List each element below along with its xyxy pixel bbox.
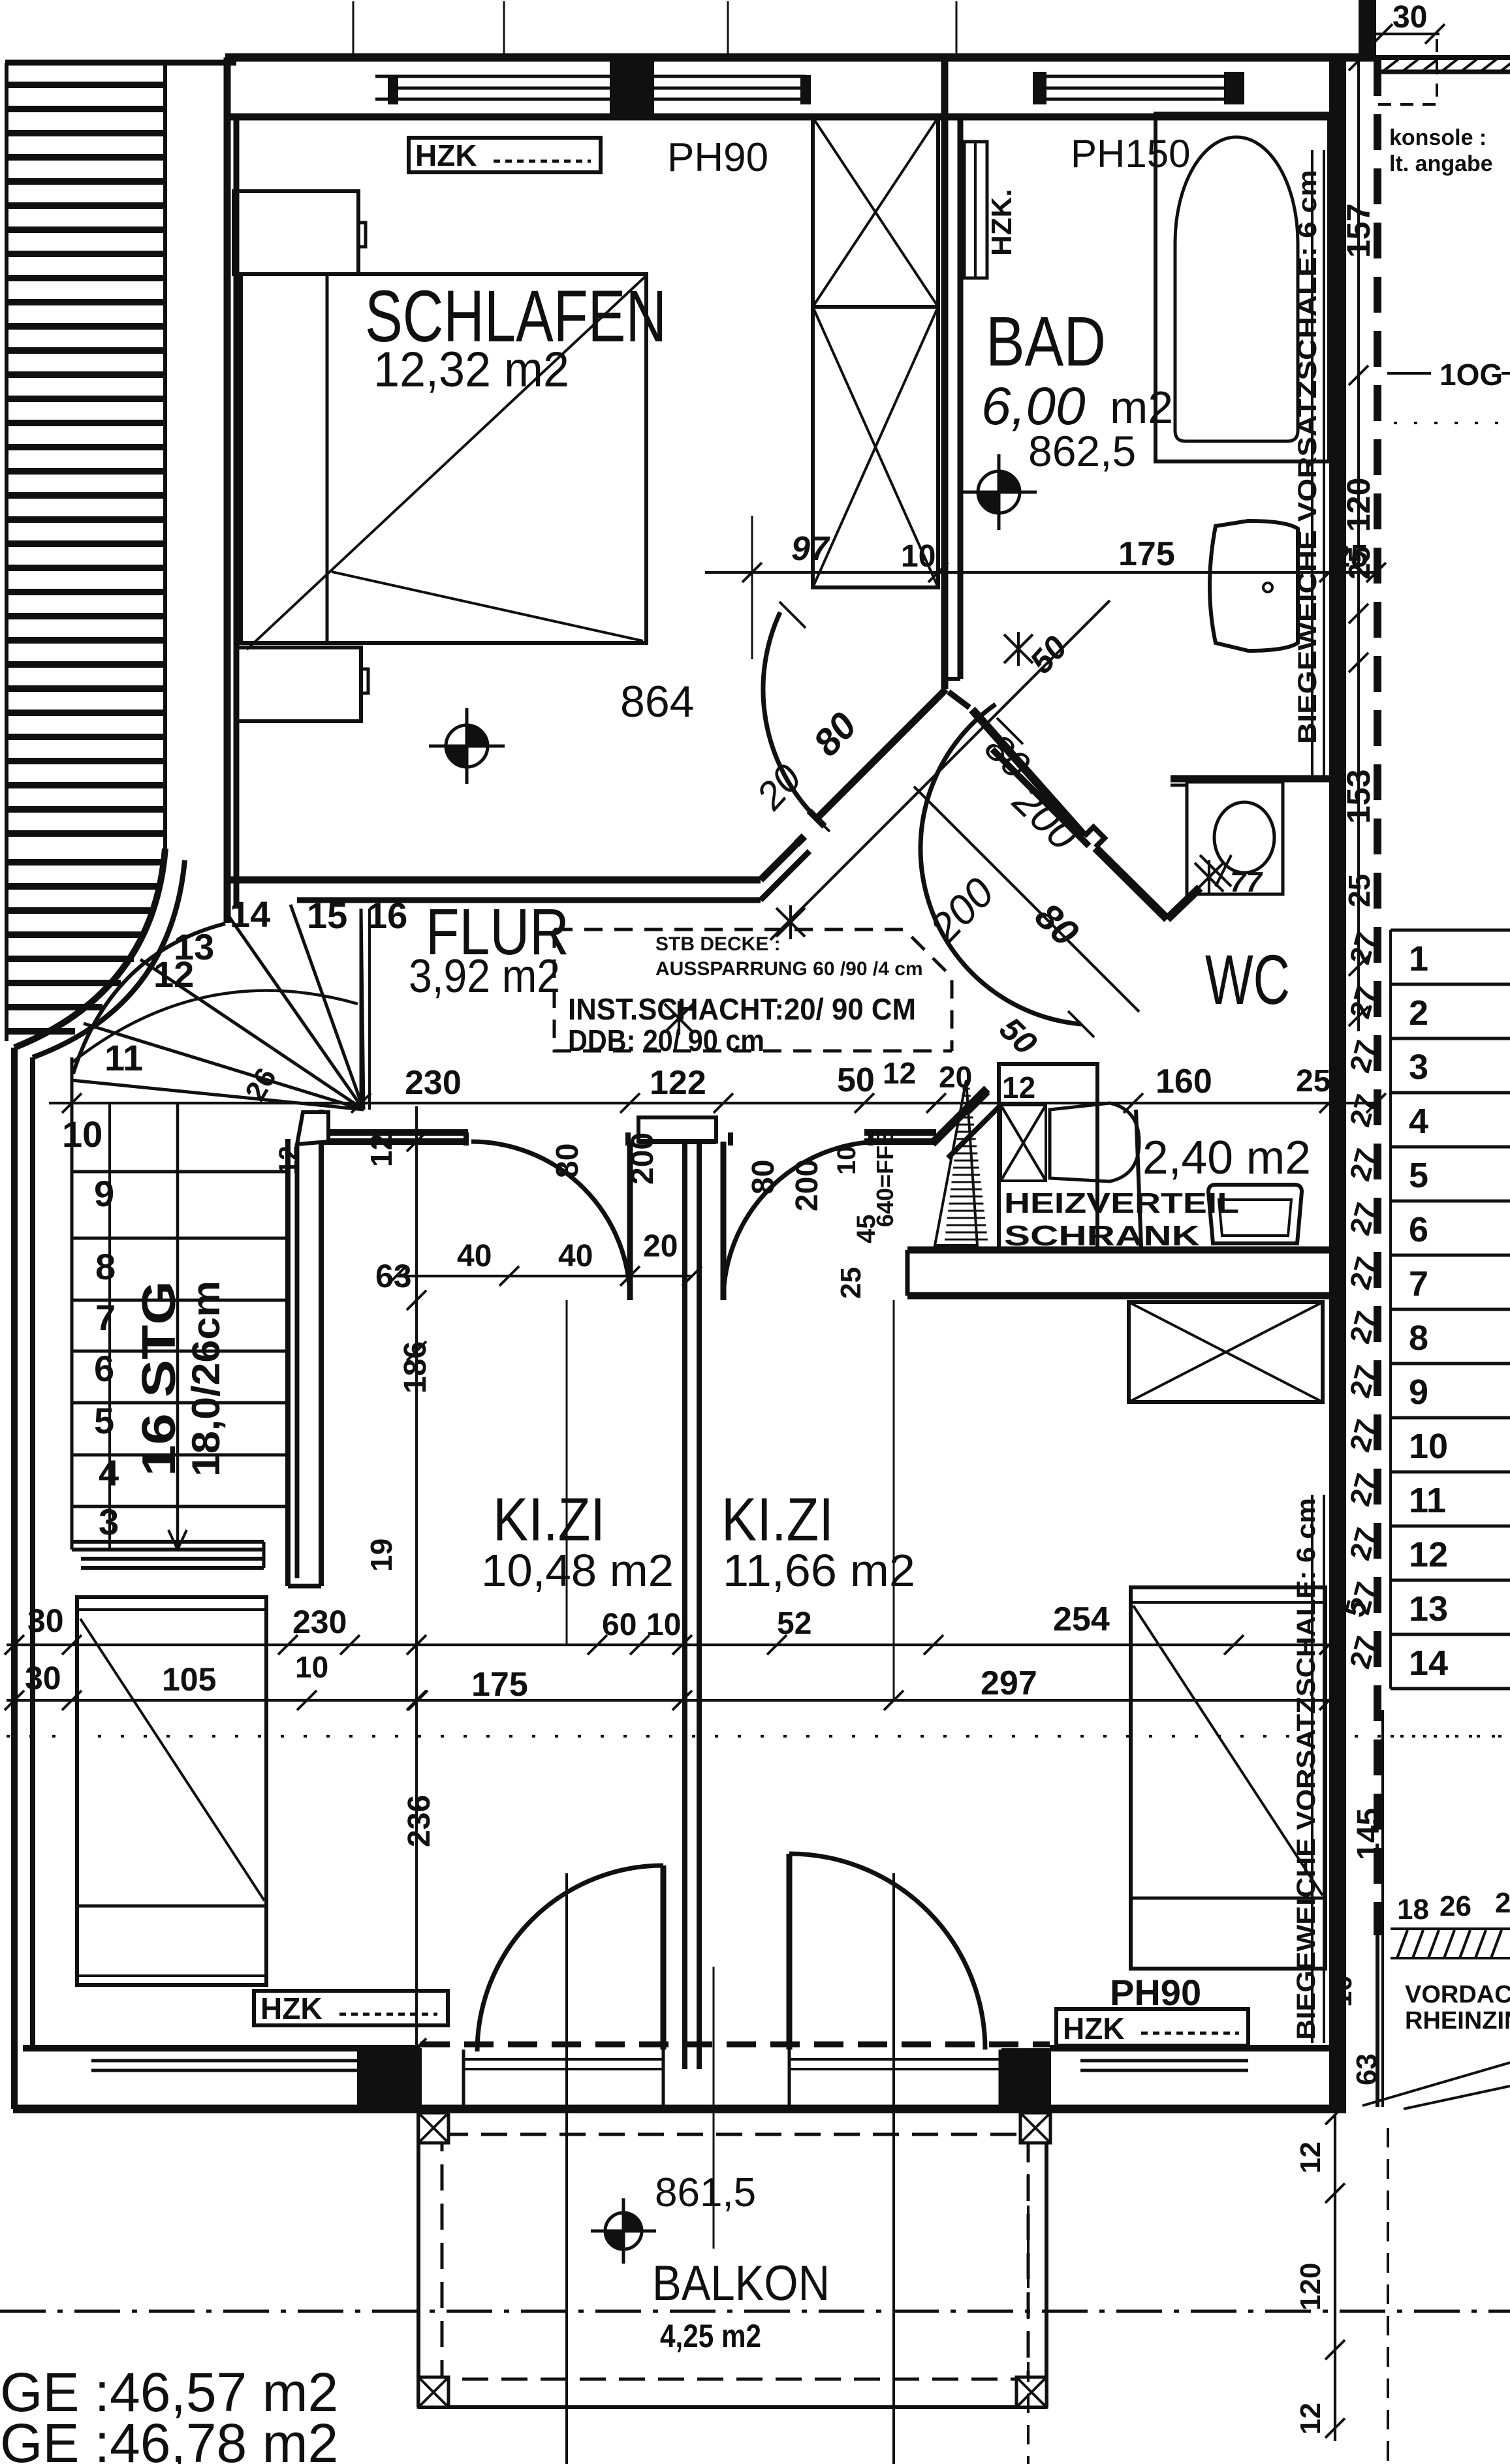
svg-text:BIEGEWEICHE VORSATZSCHALE: 6 c: BIEGEWEICHE VORSATZSCHALE: 6 cm [1292,1498,1321,2040]
svg-text:KI.ZI: KI.ZI [721,1485,834,1553]
svg-text:80: 80 [550,1144,585,1178]
svg-text:50: 50 [837,1061,875,1099]
svg-text:KI.ZI: KI.ZI [493,1485,605,1553]
svg-text:122: 122 [650,1064,706,1102]
svg-text:18: 18 [1397,1894,1429,1926]
svg-text:7: 7 [95,1297,116,1338]
svg-text:640=FFB: 640=FFB [872,1129,898,1227]
svg-text:861,5: 861,5 [655,2170,756,2215]
svg-text:7: 7 [1409,1264,1428,1303]
svg-text:862,5: 862,5 [1028,427,1136,475]
svg-text:8: 8 [1409,1318,1428,1358]
svg-text:97: 97 [791,530,830,568]
svg-text:297: 297 [981,1664,1037,1702]
svg-text:BIEGEWEICHE VORSATZSCHALE: 6 c: BIEGEWEICHE VORSATZSCHALE: 6 cm [1293,170,1322,744]
svg-text:40: 40 [558,1239,593,1273]
svg-text:12: 12 [1295,2142,1327,2174]
svg-text:6: 6 [94,1348,114,1389]
svg-text:2: 2 [1409,993,1428,1033]
svg-text:2,40 m2: 2,40 m2 [1142,1132,1311,1184]
svg-text:5: 5 [1409,1156,1428,1195]
svg-text:25: 25 [1342,546,1376,580]
svg-text:12: 12 [274,1146,303,1176]
svg-text:12: 12 [883,1056,916,1090]
svg-text:VORDACH: VORDACH [1405,1981,1510,2008]
svg-text:10: 10 [62,1114,102,1155]
svg-text:lt. angabe: lt. angabe [1389,151,1493,176]
svg-text:236: 236 [402,1795,437,1847]
svg-text:120: 120 [1295,2263,1327,2311]
svg-text:15: 15 [307,895,347,936]
svg-text:AUSSPARRUNG 60 /90 /4 cm: AUSSPARRUNG 60 /90 /4 cm [655,958,923,980]
svg-text:25: 25 [835,1267,867,1299]
svg-text:4: 4 [99,1452,119,1493]
svg-text:10,48 m2: 10,48 m2 [481,1545,674,1596]
svg-text:10: 10 [295,1650,328,1684]
svg-text:9: 9 [1409,1373,1428,1412]
svg-text:20: 20 [643,1229,678,1264]
svg-text:2: 2 [1495,1887,1510,1919]
svg-text:63: 63 [1351,2053,1383,2085]
svg-text:10: 10 [1326,1975,1358,2007]
svg-text:200: 200 [790,1159,825,1211]
svg-text:30: 30 [27,1602,64,1639]
svg-text:157: 157 [1340,204,1377,258]
svg-text:12: 12 [1002,1070,1035,1104]
svg-text:63: 63 [375,1258,412,1294]
svg-text:10: 10 [832,1146,861,1176]
svg-text:200: 200 [625,1132,660,1185]
svg-text:PH90: PH90 [667,135,768,180]
svg-text:230: 230 [405,1064,462,1102]
svg-text:10: 10 [646,1608,681,1642]
svg-text:12,32 m2: 12,32 m2 [373,342,569,398]
svg-text:153: 153 [1340,770,1377,824]
svg-text:11,66 m2: 11,66 m2 [723,1545,915,1596]
svg-text:4: 4 [1409,1102,1428,1141]
svg-text:HEIZVERTEIL: HEIZVERTEIL [1004,1187,1239,1219]
svg-text:186: 186 [398,1341,433,1394]
svg-text:GE :46,78 m2: GE :46,78 m2 [0,2412,338,2464]
svg-text:4,25 m2: 4,25 m2 [660,2318,761,2354]
svg-text:30: 30 [25,1660,61,1696]
svg-text:BALKON: BALKON [652,2256,830,2311]
svg-text:HZK: HZK [1063,2012,1125,2046]
svg-text:175: 175 [471,1666,528,1704]
svg-text:1: 1 [1409,939,1428,978]
svg-text:80: 80 [746,1160,781,1194]
svg-text:5: 5 [94,1400,114,1441]
svg-text:12: 12 [1409,1535,1448,1574]
svg-text:WC: WC [1205,940,1290,1019]
svg-text:1OG: 1OG [1439,358,1503,392]
svg-text:25: 25 [1296,1064,1330,1099]
svg-text:3,92 m2: 3,92 m2 [409,950,560,1003]
svg-text:PH150: PH150 [1071,132,1190,176]
svg-text:RHEINZINK: RHEINZINK [1405,2007,1510,2035]
svg-text:40: 40 [457,1239,492,1273]
svg-text:SCHRANK: SCHRANK [1004,1220,1200,1252]
svg-text:25: 25 [1342,874,1376,907]
svg-text:HZK.: HZK. [986,189,1018,256]
svg-text:konsole :: konsole : [1389,125,1486,150]
svg-text:10: 10 [901,539,936,574]
svg-text:18,0/26cm: 18,0/26cm [184,1281,228,1476]
svg-text:14: 14 [230,894,270,935]
svg-text:6: 6 [1409,1210,1428,1249]
svg-text:16 STG: 16 STG [133,1281,185,1476]
svg-text:230: 230 [292,1604,347,1640]
svg-text:12: 12 [364,1134,398,1167]
svg-text:8: 8 [95,1246,116,1287]
svg-text:60: 60 [602,1608,637,1642]
svg-text:STB DECKE :: STB DECKE : [655,933,781,955]
svg-text:145: 145 [1351,1808,1386,1860]
svg-text:BAD: BAD [986,302,1106,381]
svg-text:864: 864 [620,677,694,726]
svg-text:160: 160 [1156,1063,1212,1100]
svg-text:19: 19 [364,1538,398,1572]
svg-text:11: 11 [1409,1481,1446,1520]
svg-text:26: 26 [1439,1890,1471,1922]
svg-text:254: 254 [1053,1600,1110,1638]
svg-text:30: 30 [1392,0,1427,35]
svg-text:77: 77 [1230,866,1263,898]
svg-text:12: 12 [1295,2403,1327,2435]
svg-text:20: 20 [939,1060,972,1094]
svg-text:13: 13 [1409,1589,1448,1629]
svg-text:11: 11 [104,1037,143,1078]
svg-text:52: 52 [777,1606,811,1641]
svg-text:INST.SCHACHT:20/ 90 CM: INST.SCHACHT:20/ 90 CM [568,992,916,1026]
svg-text:14: 14 [1409,1644,1448,1683]
svg-text:3: 3 [1409,1048,1428,1087]
svg-text:175: 175 [1118,535,1175,573]
svg-text:9: 9 [94,1173,114,1214]
svg-text:13: 13 [174,926,214,967]
svg-text:HZK: HZK [260,1991,322,2025]
svg-text:m2: m2 [1110,382,1173,433]
svg-text:16: 16 [367,895,407,936]
svg-text:10: 10 [1409,1427,1448,1466]
svg-text:PH90: PH90 [1110,1972,1201,2013]
svg-text:120: 120 [1340,478,1377,532]
svg-text:3: 3 [99,1501,119,1542]
svg-text:105: 105 [162,1661,216,1698]
svg-text:HZK: HZK [415,138,477,172]
